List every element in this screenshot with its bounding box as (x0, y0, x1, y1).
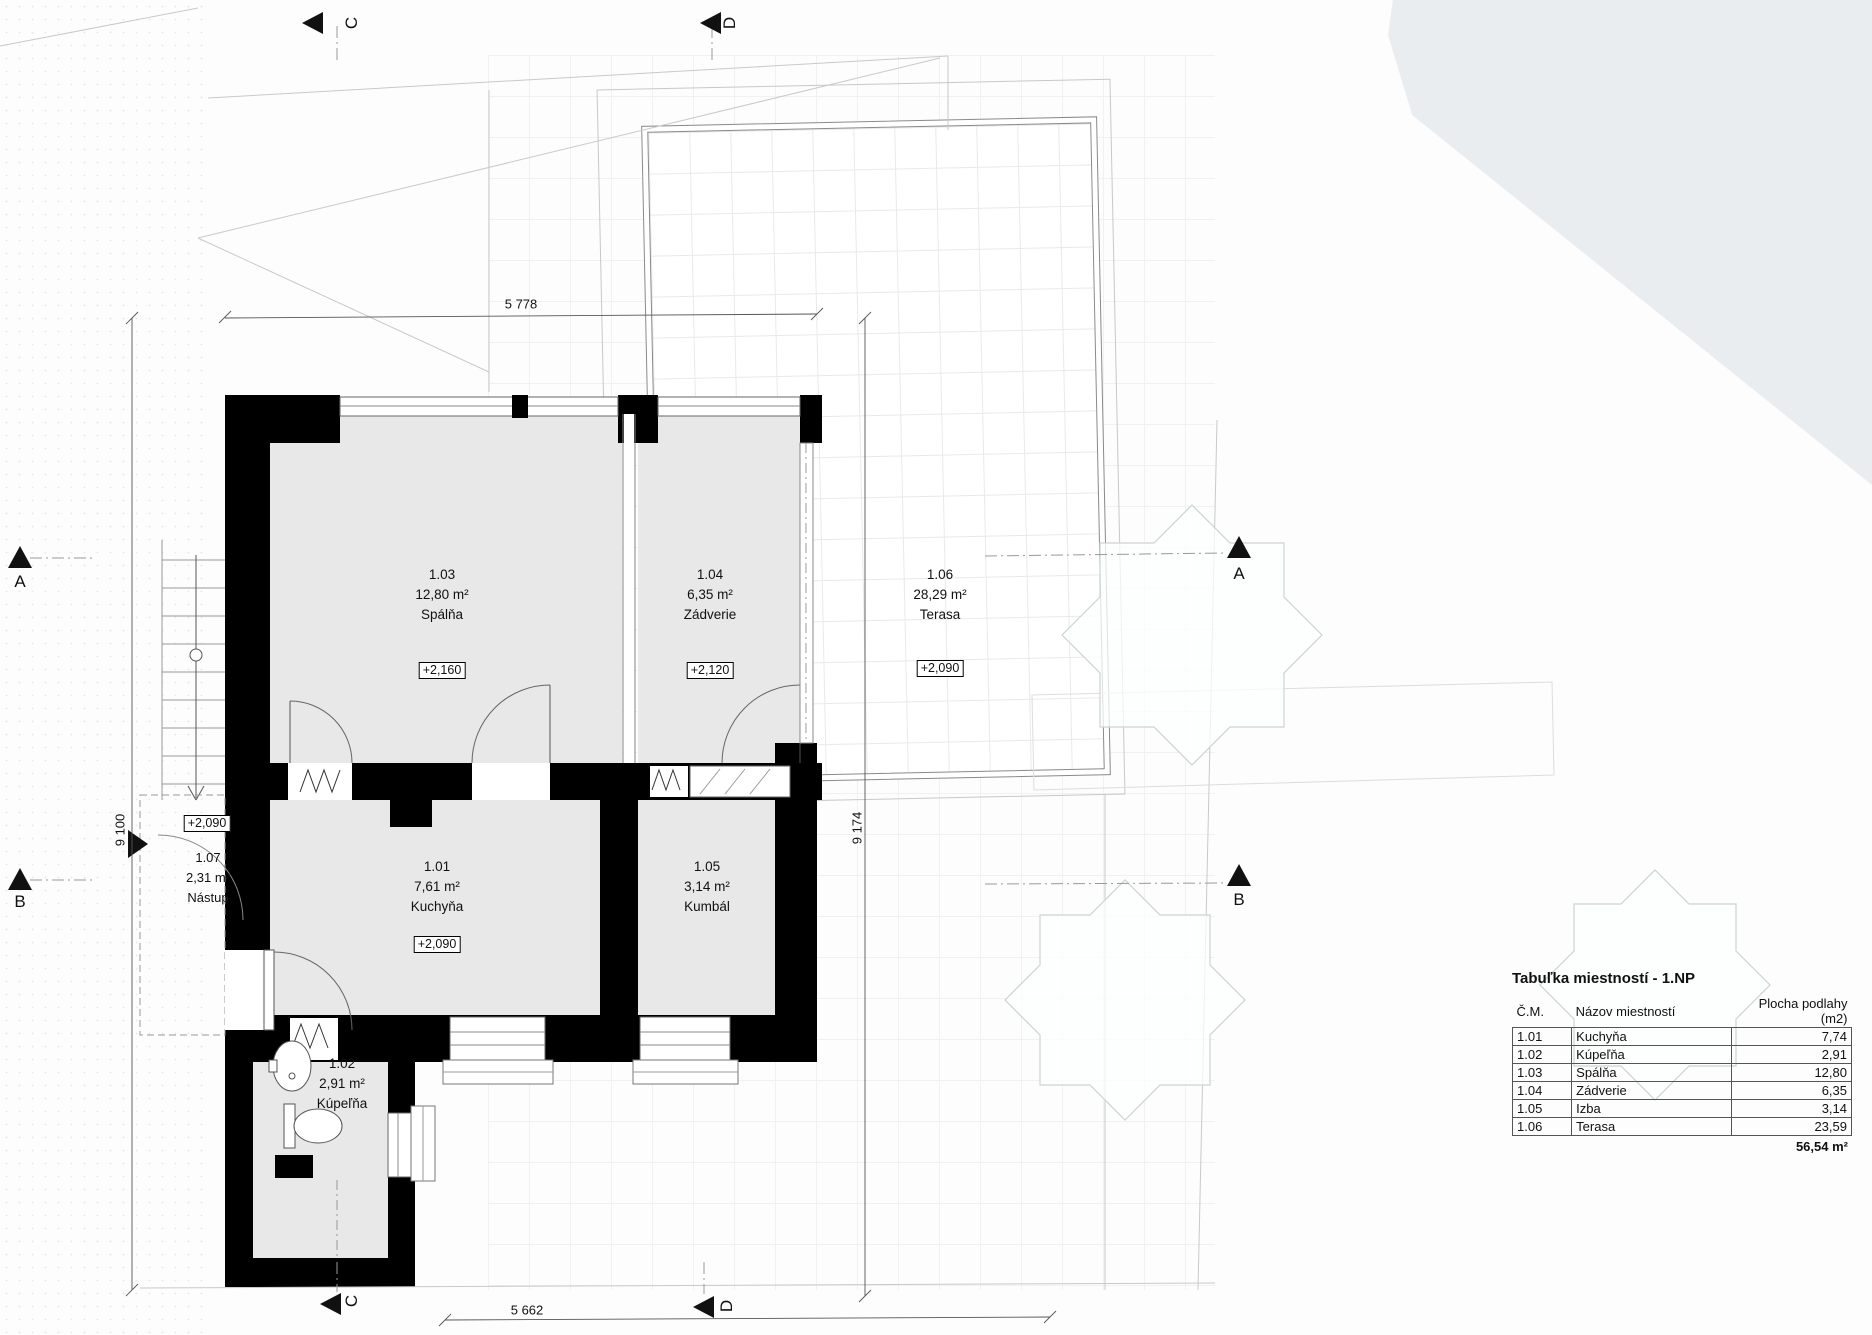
room-name: Zádverie (684, 605, 737, 625)
room-label-kupelna: 1.02 2,91 m² Kúpeľňa (317, 1054, 367, 1114)
cell-area: 2,91 (1732, 1046, 1852, 1064)
room-area: 3,14 m² (684, 877, 730, 897)
room-label-terasa: 1.06 28,29 m² Terasa (913, 565, 966, 625)
cell-area: 12,80 (1732, 1064, 1852, 1082)
elevation-kuchyna: +2,090 (414, 936, 461, 953)
cell-area: 7,74 (1732, 1028, 1852, 1046)
table-total-area: 56,54 m² (1512, 1136, 1852, 1154)
section-label-d-top: D (720, 17, 740, 29)
dimension-right: 9 174 (850, 812, 865, 845)
floor-plan-canvas: 1.03 12,80 m² Spálňa +2,160 1.04 6,35 m²… (0, 0, 1872, 1335)
cell-name: Kúpeľňa (1572, 1046, 1732, 1064)
room-number: 1.02 (317, 1054, 367, 1074)
room-label-zadverie: 1.04 6,35 m² Zádverie (684, 565, 737, 625)
cell-number: 1.06 (1513, 1118, 1572, 1136)
section-label-b-right: B (1233, 890, 1244, 910)
room-name: Spálňa (415, 605, 468, 625)
cell-number: 1.04 (1513, 1082, 1572, 1100)
room-name: Nástup (186, 888, 230, 908)
table-row: 1.01 Kuchyňa 7,74 (1513, 1028, 1852, 1046)
cell-number: 1.05 (1513, 1100, 1572, 1118)
room-label-kumbal: 1.05 3,14 m² Kumbál (684, 857, 730, 917)
cell-number: 1.01 (1513, 1028, 1572, 1046)
room-number: 1.01 (411, 857, 464, 877)
room-area: 2,31 m² (186, 868, 230, 888)
room-name: Kúpeľňa (317, 1094, 367, 1114)
dimension-bottom: 5 662 (511, 1303, 544, 1318)
room-label-spalna: 1.03 12,80 m² Spálňa (415, 565, 468, 625)
elevation-terasa: +2,090 (917, 660, 964, 677)
room-area: 6,35 m² (684, 585, 737, 605)
room-name: Kumbál (684, 897, 730, 917)
rooms-table: Tabuľka miestností - 1.NP Č.M. Názov mie… (1512, 970, 1852, 1154)
dimension-top: 5 778 (505, 297, 538, 312)
table-row: 1.03 Spálňa 12,80 (1513, 1064, 1852, 1082)
room-area: 7,61 m² (411, 877, 464, 897)
elevation-nastup: +2,090 (184, 815, 231, 832)
room-label-kuchyna: 1.01 7,61 m² Kuchyňa (411, 857, 464, 917)
room-number: 1.03 (415, 565, 468, 585)
cell-name: Izba (1572, 1100, 1732, 1118)
section-label-c-top: C (342, 17, 362, 29)
cell-number: 1.02 (1513, 1046, 1572, 1064)
section-label-c-bottom: C (342, 1295, 362, 1307)
dimension-left: 9 100 (113, 814, 128, 847)
room-name: Kuchyňa (411, 897, 464, 917)
cell-name: Kuchyňa (1572, 1028, 1732, 1046)
table-row: 1.06 Terasa 23,59 (1513, 1118, 1852, 1136)
elevation-spalna: +2,160 (419, 662, 466, 679)
rooms-table-title: Tabuľka miestností - 1.NP (1512, 970, 1852, 987)
section-label-a-right: A (1233, 564, 1244, 584)
table-row: 1.05 Izba 3,14 (1513, 1100, 1852, 1118)
table-row: 1.04 Zádverie 6,35 (1513, 1082, 1852, 1100)
table-header-row: Č.M. Názov miestností Plocha podlahy (m2… (1513, 995, 1852, 1028)
room-number: 1.04 (684, 565, 737, 585)
cell-area: 3,14 (1732, 1100, 1852, 1118)
col-header-name: Názov miestností (1572, 995, 1732, 1028)
cell-name: Terasa (1572, 1118, 1732, 1136)
table-row: 1.02 Kúpeľňa 2,91 (1513, 1046, 1852, 1064)
cell-name: Spálňa (1572, 1064, 1732, 1082)
elevation-zadverie: +2,120 (687, 662, 734, 679)
room-name: Terasa (913, 605, 966, 625)
room-number: 1.07 (186, 848, 230, 868)
col-header-number: Č.M. (1513, 995, 1572, 1028)
room-area: 28,29 m² (913, 585, 966, 605)
col-header-area: Plocha podlahy (m2) (1732, 995, 1852, 1028)
room-number: 1.06 (913, 565, 966, 585)
cell-area: 23,59 (1732, 1118, 1852, 1136)
cell-number: 1.03 (1513, 1064, 1572, 1082)
cell-area: 6,35 (1732, 1082, 1852, 1100)
section-label-d-bottom: D (717, 1300, 737, 1312)
room-label-nastup: 1.07 2,31 m² Nástup (186, 848, 230, 908)
section-label-b-left: B (14, 892, 25, 912)
room-number: 1.05 (684, 857, 730, 877)
cell-name: Zádverie (1572, 1082, 1732, 1100)
room-area: 2,91 m² (317, 1074, 367, 1094)
section-label-a-left: A (14, 572, 25, 592)
room-area: 12,80 m² (415, 585, 468, 605)
